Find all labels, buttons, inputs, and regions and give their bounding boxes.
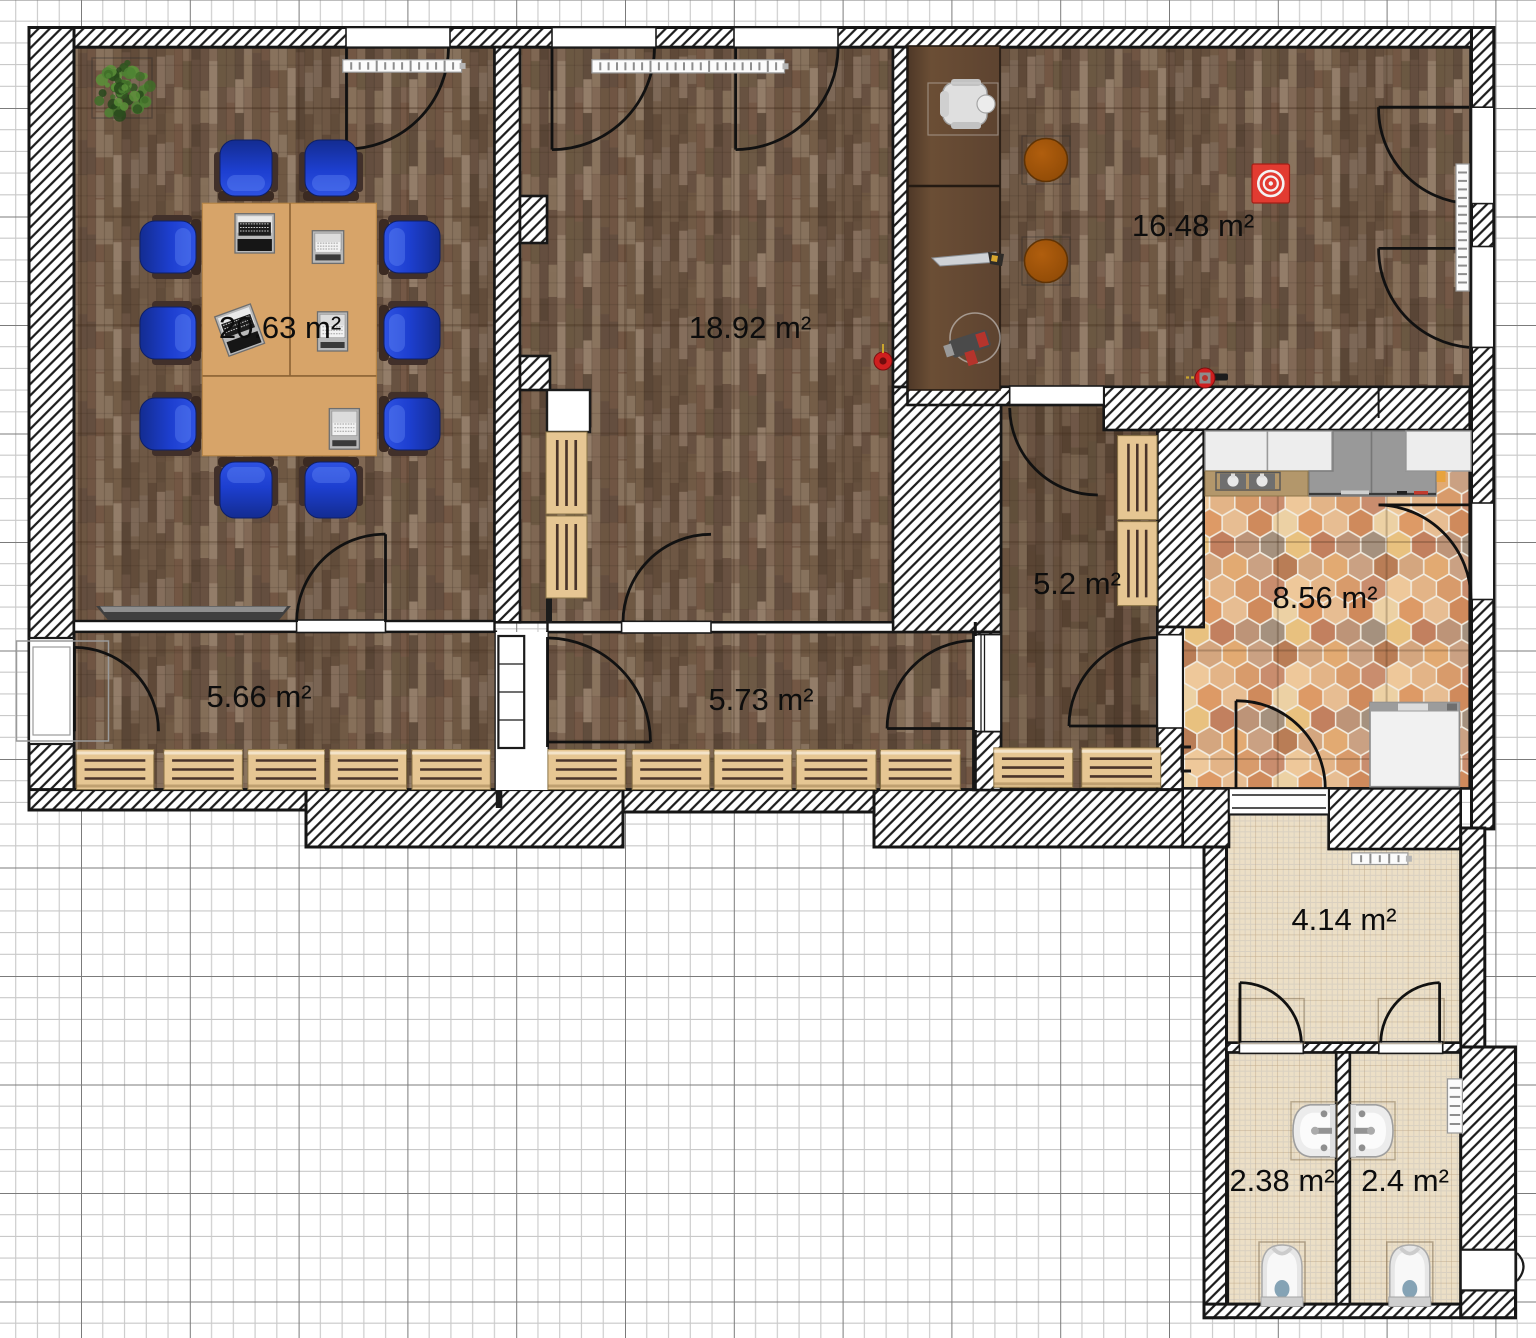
svg-text:20.63 m²: 20.63 m² (219, 310, 341, 345)
svg-text:4.14 m²: 4.14 m² (1291, 902, 1396, 937)
svg-text:5.66 m²: 5.66 m² (206, 679, 311, 714)
svg-text:5.2 m²: 5.2 m² (1033, 566, 1121, 601)
svg-text:8.56 m²: 8.56 m² (1272, 580, 1377, 615)
svg-text:2.38 m²: 2.38 m² (1229, 1163, 1334, 1198)
svg-text:2.4 m²: 2.4 m² (1361, 1163, 1449, 1198)
svg-text:5.73 m²: 5.73 m² (708, 682, 813, 717)
svg-text:18.92 m²: 18.92 m² (689, 310, 811, 345)
svg-text:16.48 m²: 16.48 m² (1132, 208, 1254, 243)
